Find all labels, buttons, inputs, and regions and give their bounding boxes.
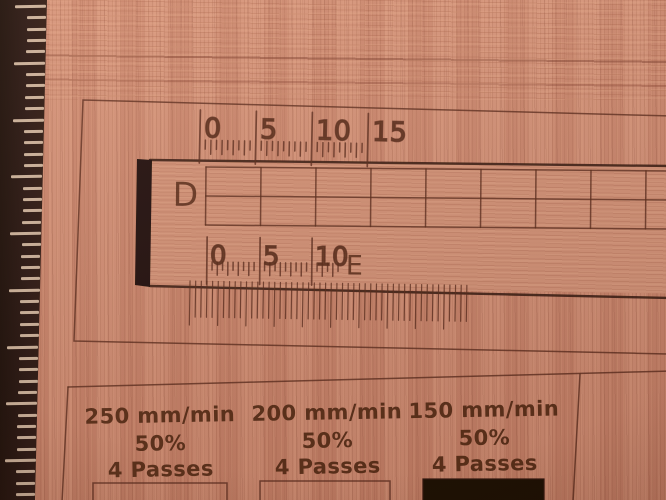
top-scale-number: 0 [204, 113, 222, 144]
tick-mark [404, 284, 405, 320]
tick-mark [314, 283, 315, 319]
column-speed: 200 mm/min [251, 399, 402, 426]
comb-box-row: D [173, 167, 666, 229]
tick-mark [189, 281, 190, 325]
tick-mark [410, 284, 411, 320]
tick-mark [229, 282, 230, 318]
tick-mark [274, 282, 275, 326]
top-scale-number: 15 [372, 117, 408, 149]
column-power: 50% [458, 425, 510, 450]
column-power: 50% [301, 428, 353, 453]
test-patch-outline [93, 483, 227, 500]
tick-mark [444, 285, 445, 329]
box-divider [645, 171, 646, 229]
tick-mark [252, 282, 253, 318]
test-patch-cut [423, 479, 544, 500]
box-divider [315, 168, 316, 226]
row-label-d: D [173, 175, 199, 214]
row-label-e: E [346, 250, 364, 281]
box-line [206, 196, 666, 200]
tick-mark [319, 283, 320, 319]
engraving-layer: 051015 D 0510 E 250 mm/min 50% [0, 0, 666, 500]
tick-mark [302, 283, 303, 327]
tick-mark [269, 282, 270, 318]
box-divider [370, 168, 371, 226]
column-passes: 4 Passes [432, 451, 538, 477]
box-line [206, 167, 666, 171]
tick-mark [365, 284, 366, 320]
tick-mark [399, 284, 400, 320]
tick-mark [353, 284, 354, 320]
tick-mark [257, 282, 258, 318]
tick-mark [240, 282, 241, 318]
tick-mark [427, 285, 428, 321]
column-passes: 4 Passes [108, 457, 214, 483]
box-divider [590, 170, 591, 228]
tick-mark [297, 283, 298, 319]
tick-mark [438, 285, 439, 321]
e-scale-number: 10 [315, 242, 349, 272]
tick-mark [393, 284, 394, 320]
box-divider [425, 169, 426, 227]
top-scale: 051015 [199, 110, 407, 167]
column-speed: 150 mm/min [408, 396, 559, 423]
tick-mark [370, 284, 371, 320]
tick-mark [199, 110, 200, 163]
box-line [206, 225, 666, 229]
tick-mark [367, 114, 368, 167]
tick-mark [376, 284, 377, 320]
tick-mark [455, 285, 456, 321]
tick-mark [387, 284, 388, 328]
e-scale: 0510 [207, 237, 350, 285]
tick-mark [325, 283, 326, 319]
box-divider [480, 169, 481, 227]
tick-mark [382, 284, 383, 320]
test-patch-outline [260, 481, 390, 500]
tick-mark [263, 282, 264, 318]
tick-mark [246, 282, 247, 326]
test-grid-labels: 250 mm/min 50% 4 Passes 200 mm/min 50% 4… [84, 396, 560, 482]
tick-mark [415, 285, 416, 329]
tick-mark [348, 283, 349, 319]
column-passes: 4 Passes [275, 454, 381, 480]
tick-mark [212, 281, 213, 317]
cut-slot [135, 159, 152, 287]
tick-mark [331, 283, 332, 327]
top-scale-number: 5 [260, 114, 278, 145]
test-grid: 250 mm/min 50% 4 Passes 200 mm/min 50% 4… [62, 371, 666, 500]
tick-mark [201, 281, 202, 317]
e-scale-number: 5 [263, 242, 280, 272]
tick-mark [235, 282, 236, 318]
column-speed: 250 mm/min [84, 402, 235, 429]
tick-mark [255, 111, 256, 164]
tick-mark [291, 283, 292, 319]
tick-mark [206, 281, 207, 317]
box-divider [206, 167, 207, 225]
column-power: 50% [134, 431, 186, 456]
tick-mark [280, 282, 281, 318]
tick-mark [286, 283, 287, 319]
tick-mark [223, 282, 224, 318]
tick-mark [311, 112, 312, 165]
tick-mark [421, 285, 422, 321]
tick-mark [466, 285, 467, 321]
tick-mark [308, 283, 309, 319]
tick-mark [449, 285, 450, 321]
tick-mark [359, 284, 360, 328]
tick-mark [336, 283, 337, 319]
tick-mark [342, 283, 343, 319]
tick-mark [461, 285, 462, 321]
box-divider [261, 167, 262, 225]
tick-mark [195, 281, 196, 317]
box-divider [535, 170, 536, 228]
laser-test-board-photo: 051015 D 0510 E 250 mm/min 50% [0, 0, 666, 500]
tick-mark [432, 285, 433, 321]
tick-mark [218, 281, 219, 325]
e-scale-row: 0510 E [207, 237, 364, 286]
